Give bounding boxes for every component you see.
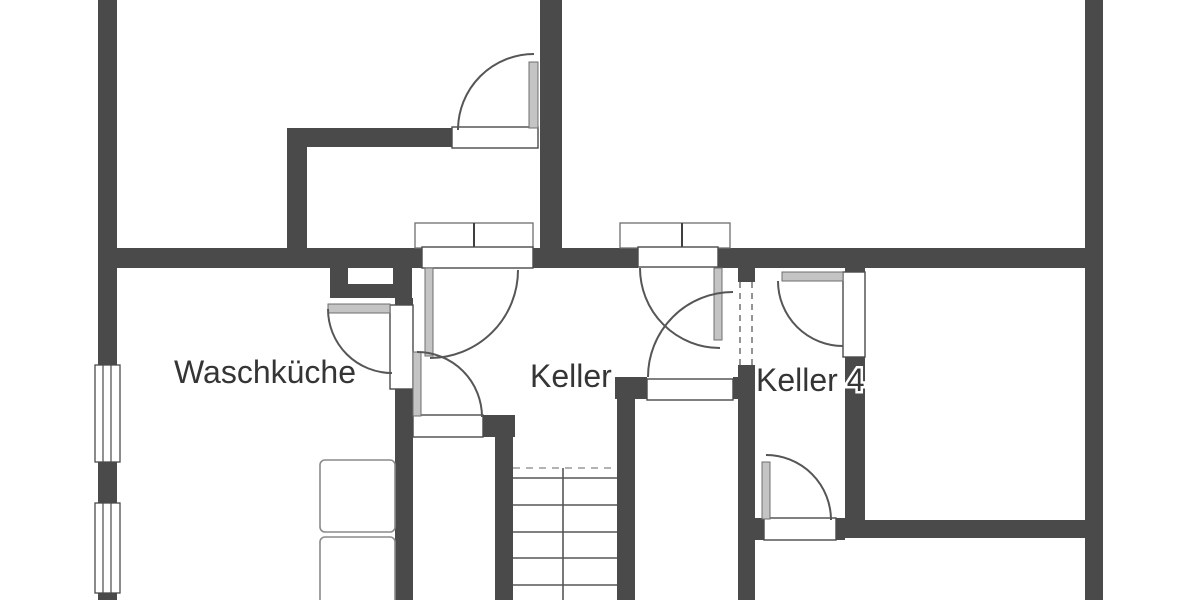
door-frames (415, 223, 730, 248)
cellar-top-door-sill (422, 247, 533, 268)
staircase (513, 468, 617, 600)
cellar-top-door-arc (430, 270, 518, 358)
room-a-door-sill (452, 127, 538, 148)
outer-wall-left-mid (98, 462, 117, 503)
room-labels: Waschküche Keller Keller 4 (174, 354, 865, 398)
cellar4-south-wall-east-jamb (836, 518, 845, 540)
corridor-east-door-leaf (714, 268, 722, 340)
window-2 (95, 503, 120, 593)
stairwell-wall-left (495, 437, 513, 600)
washing-machine-2 (320, 537, 395, 600)
room-a-interior-wall-vertical (287, 128, 307, 268)
cellar-south-door-wall-west (615, 377, 647, 399)
stair-door-sill (413, 415, 483, 437)
laundry-east-wall-lower (395, 388, 413, 600)
stairwell-wall-right (617, 380, 635, 600)
cellar4-south-door-arc (766, 455, 831, 520)
stair-door-arc (417, 352, 482, 417)
corridor-east-door-arc (640, 268, 720, 348)
window-1 (95, 365, 120, 462)
cellar4-south-wall-west-jamb (755, 518, 764, 540)
cellar4-east-door-leaf (782, 272, 843, 281)
stair-door-leaf (413, 352, 421, 416)
cellar4-south-door-leaf (762, 462, 770, 519)
cellar4-east-door-sill (843, 272, 865, 357)
cellar4-west-wall-lower (738, 365, 755, 600)
cellar-south-door-sill (647, 379, 733, 400)
corridor-east-door-frame (620, 223, 730, 248)
outer-wall-right (1085, 0, 1103, 600)
room-a-door-arc (458, 54, 534, 130)
outer-wall-left-upper (98, 0, 117, 365)
walls (98, 0, 1103, 600)
center-dividing-wall (540, 0, 562, 266)
room-a-door-leaf (529, 62, 538, 128)
laundry-door-leaf (328, 304, 390, 313)
southeast-room-bottom-wall (845, 520, 1087, 538)
corridor-wall-west (98, 248, 422, 268)
chimney-notch (348, 268, 393, 284)
room-a-interior-wall-horizontal (307, 128, 453, 147)
label-cellar-4: Keller 4 (756, 362, 865, 398)
floor-plan-page: Waschküche Keller Keller 4 (0, 0, 1200, 600)
laundry-door-sill (390, 305, 413, 389)
stair-door-wall-stub (483, 415, 515, 437)
label-laundry-room: Waschküche (174, 354, 356, 390)
outer-wall-left-lower (98, 593, 117, 600)
cellar4-east-door-arc (778, 281, 843, 346)
laundry-appliances (320, 460, 395, 600)
cellar4-south-door-sill (764, 518, 836, 540)
washing-machine-1 (320, 460, 395, 532)
label-cellar: Keller (530, 358, 612, 394)
corridor-east-door-sill (638, 247, 718, 267)
corridor-wall-east (718, 248, 1087, 268)
floor-plan-svg: Waschküche Keller Keller 4 (0, 0, 1200, 600)
cellar4-west-wall-upper (738, 266, 755, 282)
cellar-top-door-leaf (425, 268, 433, 356)
corridor-wall-center (533, 248, 638, 268)
